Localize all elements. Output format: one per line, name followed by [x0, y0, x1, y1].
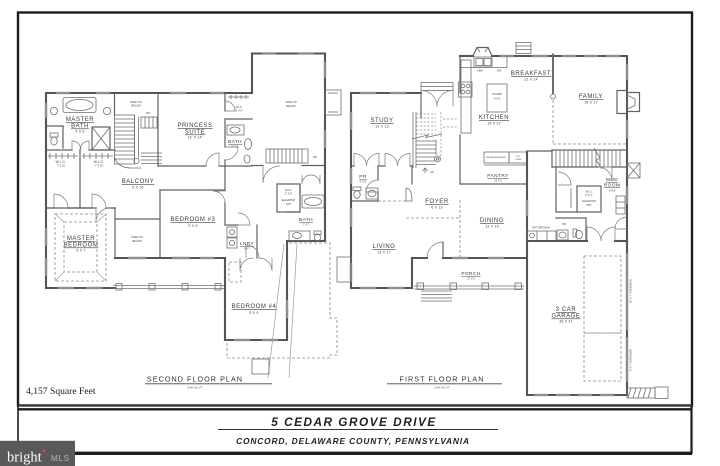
svg-text:4' X 6': 4' X 6' — [359, 180, 367, 184]
svg-text:BATH: BATH — [299, 217, 313, 223]
svg-text:9 X 8: 9 X 8 — [609, 189, 616, 193]
svg-text:OPT: OPT — [586, 203, 592, 207]
svg-text:9 X 9: 9 X 9 — [188, 224, 197, 228]
svg-text:FIRST FLOOR PLAN: FIRST FLOOR PLAN — [400, 375, 485, 384]
svg-text:9' X 7' OVERHEAD: 9' X 7' OVERHEAD — [629, 349, 633, 371]
svg-text:DW: DW — [497, 69, 502, 73]
svg-text:18 X 17: 18 X 17 — [584, 101, 597, 105]
svg-text:PR: PR — [562, 222, 566, 226]
svg-text:ROOM: ROOM — [604, 183, 621, 189]
svg-text:BELOW: BELOW — [286, 104, 296, 108]
svg-text:3 CAR: 3 CAR — [556, 307, 577, 313]
svg-text:REFRIG/FREEZER: REFRIG/FREEZER — [486, 157, 506, 159]
svg-text:4 X 8: 4 X 8 — [494, 97, 501, 101]
svg-text:9 X 7: 9 X 7 — [76, 249, 85, 253]
svg-text:13 X 13: 13 X 13 — [375, 125, 388, 129]
svg-text:LNRY: LNRY — [240, 241, 255, 247]
svg-text:DINING: DINING — [480, 218, 504, 224]
svg-text:12 X 14: 12 X 14 — [524, 78, 537, 82]
svg-text:FOYER: FOYER — [425, 199, 449, 205]
svg-text:OPEN TO: OPEN TO — [285, 100, 297, 104]
svg-text:BELOW: BELOW — [131, 104, 141, 108]
svg-text:KITCHEN: KITCHEN — [479, 115, 509, 121]
svg-text:5' X 7': 5' X 7' — [585, 193, 593, 197]
svg-text:13 X 17: 13 X 17 — [377, 251, 390, 255]
svg-text:6 X 13: 6 X 13 — [431, 206, 442, 210]
svg-text:W.I.C.: W.I.C. — [285, 188, 292, 192]
svg-text:MLS: MLS — [51, 454, 70, 463]
svg-text:W.I.C.: W.I.C. — [235, 105, 242, 109]
svg-text:ELEVATOR: ELEVATOR — [582, 199, 596, 203]
svg-text:DN: DN — [313, 155, 317, 159]
svg-text:4,344 SQ. FT.: 4,344 SQ. FT. — [187, 385, 203, 389]
svg-text:9 X 6: 9 X 6 — [75, 130, 84, 134]
svg-text:PORCH: PORCH — [461, 271, 480, 277]
svg-text:3,344 SQ. FT.: 3,344 SQ. FT. — [434, 385, 450, 389]
svg-text:36 X 21: 36 X 21 — [559, 320, 572, 324]
svg-text:27 X 6: 27 X 6 — [467, 277, 475, 281]
svg-text:PR: PR — [359, 174, 367, 180]
svg-text:9 X 9: 9 X 9 — [249, 311, 258, 315]
svg-text:MASTER: MASTER — [66, 117, 94, 123]
svg-text:UP: UP — [430, 170, 434, 174]
svg-text:13' X 14': 13' X 14' — [187, 136, 202, 140]
svg-text:FAMILY: FAMILY — [579, 94, 603, 100]
svg-text:4,157 Square Feet: 4,157 Square Feet — [26, 386, 96, 397]
svg-text:OVEN: OVEN — [515, 159, 522, 161]
svg-text:PRINCESS: PRINCESS — [177, 123, 212, 129]
svg-text:10 X 6: 10 X 6 — [494, 179, 502, 183]
svg-text:BATH: BATH — [228, 139, 242, 145]
svg-text:16' X 7' OVERHEAD: 16' X 7' OVERHEAD — [629, 279, 633, 303]
svg-text:9 X 16: 9 X 16 — [132, 186, 143, 190]
svg-text:ISLAND: ISLAND — [492, 92, 501, 96]
svg-text:OPEN TO: OPEN TO — [130, 100, 142, 104]
svg-text:7' X 10': 7' X 10' — [57, 164, 66, 168]
svg-text:SINK: SINK — [477, 69, 483, 73]
svg-text:bright: bright — [7, 450, 42, 466]
svg-text:OPEN TO: OPEN TO — [131, 235, 143, 239]
svg-text:PANTRY: PANTRY — [487, 173, 509, 179]
svg-text:MASTER: MASTER — [67, 236, 95, 242]
svg-text:BREAKFAST: BREAKFAST — [511, 71, 551, 77]
svg-text:OPT: OPT — [286, 202, 292, 206]
svg-text:7' X 7': 7' X 7' — [302, 223, 310, 227]
svg-text:7' X 10': 7' X 10' — [95, 164, 104, 168]
svg-text:BELOW: BELOW — [132, 239, 142, 243]
svg-text:SECOND FLOOR PLAN: SECOND FLOOR PLAN — [147, 375, 243, 384]
svg-text:STUDY: STUDY — [370, 118, 393, 124]
svg-text:BEDROOM #3: BEDROOM #3 — [171, 217, 216, 223]
svg-text:BEDROOM #4: BEDROOM #4 — [232, 304, 277, 310]
svg-text:14 X 22: 14 X 22 — [487, 122, 500, 126]
svg-text:BALCONY: BALCONY — [122, 179, 155, 185]
svg-text:5 CEDAR GROVE DRIVE: 5 CEDAR GROVE DRIVE — [271, 415, 437, 429]
svg-text:W.I.C.: W.I.C. — [94, 160, 105, 164]
svg-text:6 X 7: 6 X 7 — [244, 247, 251, 251]
svg-text:W.I.C.: W.I.C. — [56, 160, 67, 164]
svg-text:CONCORD, DELAWARE COUNTY, PENN: CONCORD, DELAWARE COUNTY, PENNSYLVANIA — [236, 436, 470, 446]
svg-text:5' X 6': 5' X 6' — [235, 109, 243, 113]
svg-text:OPT WET BAR: OPT WET BAR — [532, 226, 550, 230]
svg-text:ELEVATOR: ELEVATOR — [282, 198, 296, 202]
svg-text:LIVING: LIVING — [373, 244, 396, 250]
svg-text:W.I.C.: W.I.C. — [585, 190, 592, 194]
svg-text:DN: DN — [146, 111, 150, 115]
svg-text:13 X 15: 13 X 15 — [485, 225, 498, 229]
svg-text:5' X 5': 5' X 5' — [285, 192, 293, 196]
